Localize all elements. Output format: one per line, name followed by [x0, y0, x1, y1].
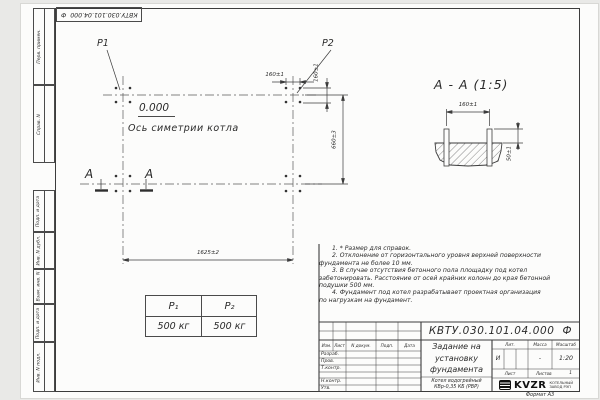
margin-box-divider: Инв. N дубл.	[34, 233, 45, 268]
margin-box-podp-data-1: Подп. и дата	[33, 190, 55, 232]
boiler-symmetry-axis-label: Ось симетрии котла	[128, 124, 239, 134]
title-block-doc-number: КВТУ.030.101.04.000 Ф	[421, 322, 580, 340]
format-label: Формат А3	[500, 393, 580, 398]
margin-box-vzam-inv: Взам. инв. N	[33, 269, 55, 304]
note-line: забетонировать. Расстояние от осей крайн…	[319, 275, 579, 282]
dim-160-vertical: 160±1	[315, 59, 324, 85]
sig-label-utv: Утв.	[321, 387, 331, 392]
doc-title-line: фундамента	[421, 364, 492, 376]
margin-box-divider: Инв. N подл.	[34, 343, 45, 391]
sheet-label: Лист	[492, 369, 528, 378]
load-table-value-cell: 500 кг	[202, 317, 257, 336]
lit-value: И	[492, 349, 504, 369]
note-line: 3. В случае отсутствия бетонного пола пл…	[319, 267, 579, 274]
note-line: по нагрузкам на фундамент.	[319, 297, 579, 304]
sig-label-razrab: Разраб.	[321, 353, 339, 358]
logo-caption-line: ЗАВОД РЭП	[549, 385, 573, 389]
margin-box-divider: Подп. и дата	[34, 191, 45, 231]
load-table-value-p1: 500 кг	[158, 321, 190, 332]
section-dim-160: 160±1	[448, 103, 488, 109]
margin-box-divider: Перв. примен.	[34, 9, 45, 84]
top-repeat-stamp-number: КВТУ.030.101.04.000 Ф	[61, 11, 138, 18]
mass-value: -	[528, 349, 552, 369]
section-letter-left: А	[85, 168, 93, 180]
sig-label-tkontr: Т.контр.	[321, 367, 341, 372]
load-point-1-label: P1	[97, 39, 109, 49]
kvzr-logo-caption: КОТЕЛЬНЫЙ ЗАВОД РЭП	[549, 381, 573, 389]
sig-label-nkontr: Н.контр.	[321, 380, 342, 385]
load-table-value-cell: 500 кг	[146, 317, 202, 336]
margin-label: Перв. примен.	[37, 29, 42, 64]
title-block-name: Задание на установку фундамента	[421, 341, 492, 376]
margin-label: Справ. N	[37, 113, 42, 134]
section-view-title: А - А (1:5)	[434, 79, 508, 92]
margin-label: Подп. и дата	[37, 307, 42, 338]
load-table-value-p2: 500 кг	[214, 321, 246, 332]
note-line: 4. Фундамент под котел разрабатывает про…	[319, 289, 579, 296]
load-table-header-cell: Р₁	[146, 296, 202, 317]
sheets-label: Листов	[536, 371, 552, 376]
product-name-line: КВр-0,35 КБ (РВР)	[421, 385, 492, 391]
margin-label: Взам. инв. N	[37, 272, 42, 302]
margin-box-inv-podl: Инв. N подл.	[33, 342, 55, 392]
title-block-product: Котел водогрейный КВр-0,35 КБ (РВР)	[421, 379, 492, 391]
lit-header: Лит.	[492, 340, 528, 349]
load-point-2-label: P2	[322, 39, 334, 49]
scanned-drawing-sheet: { "stamp": { "number": "КВТУ.030.101.04.…	[0, 0, 600, 400]
level-mark: 0.000	[138, 103, 175, 117]
scale-header: Масштаб	[552, 340, 580, 349]
note-line: 2. Отклонение от горизонтального уровня …	[319, 252, 579, 259]
margin-label: Инв. N подл.	[37, 352, 42, 382]
doc-title-line: Задание на	[421, 341, 492, 353]
rev-header-podp: Подп.	[376, 340, 398, 351]
margin-box-divider: Справ. N	[34, 86, 45, 162]
section-letter-right: А	[145, 168, 153, 180]
margin-box-podp-data-2: Подп. и дата	[33, 304, 55, 342]
dim-1625-horizontal: 1625±2	[183, 251, 233, 257]
factory-logo-row: KVZR КОТЕЛЬНЫЙ ЗАВОД РЭП	[492, 378, 580, 392]
doc-title-line: установку	[421, 353, 492, 365]
load-table-header-cell: Р₂	[202, 296, 257, 317]
load-table-header-p1: Р₁	[168, 301, 178, 312]
scale-value: 1:20	[552, 349, 580, 369]
top-repeat-stamp-box: КВТУ.030.101.04.000 Ф	[56, 7, 142, 22]
sheets-cell: Листов 1	[528, 369, 580, 378]
mass-header: Масса	[528, 340, 552, 349]
margin-box-perv-primen: Перв. примен.	[33, 8, 55, 85]
load-table: Р₁ Р₂ 500 кг 500 кг	[145, 295, 257, 337]
sheets-value: 1	[569, 371, 572, 376]
load-table-header-p2: Р₂	[224, 301, 234, 312]
margin-label: Инв. N дубл.	[37, 235, 42, 265]
kvzr-logo-text: KVZR	[514, 380, 546, 391]
technical-notes: 1. * Размер для справок. 2. Отклонение о…	[319, 245, 579, 304]
rev-header-data: Дата	[398, 340, 421, 351]
margin-box-divider: Взам. инв. N	[34, 270, 45, 303]
margin-box-inv-dubl: Инв. N дубл.	[33, 232, 55, 269]
rev-header-izm: Изм.	[320, 340, 333, 351]
margin-box-sprav-n: Справ. N	[33, 85, 55, 163]
rev-header-list: Лист	[333, 340, 346, 351]
section-dim-50: 50±1	[508, 140, 517, 166]
margin-label: Подп. и дата	[37, 195, 42, 226]
kvzr-logo-icon	[499, 380, 511, 390]
note-line: 1. * Размер для справок.	[319, 245, 579, 252]
sig-label-prov: Пров.	[321, 360, 334, 365]
rev-header-ndokum: N докум.	[346, 340, 376, 351]
dim-160-horizontal: 160±1	[252, 73, 284, 79]
margin-box-divider: Подп. и дата	[34, 305, 45, 341]
dim-660-vertical: 660±3	[332, 125, 341, 155]
